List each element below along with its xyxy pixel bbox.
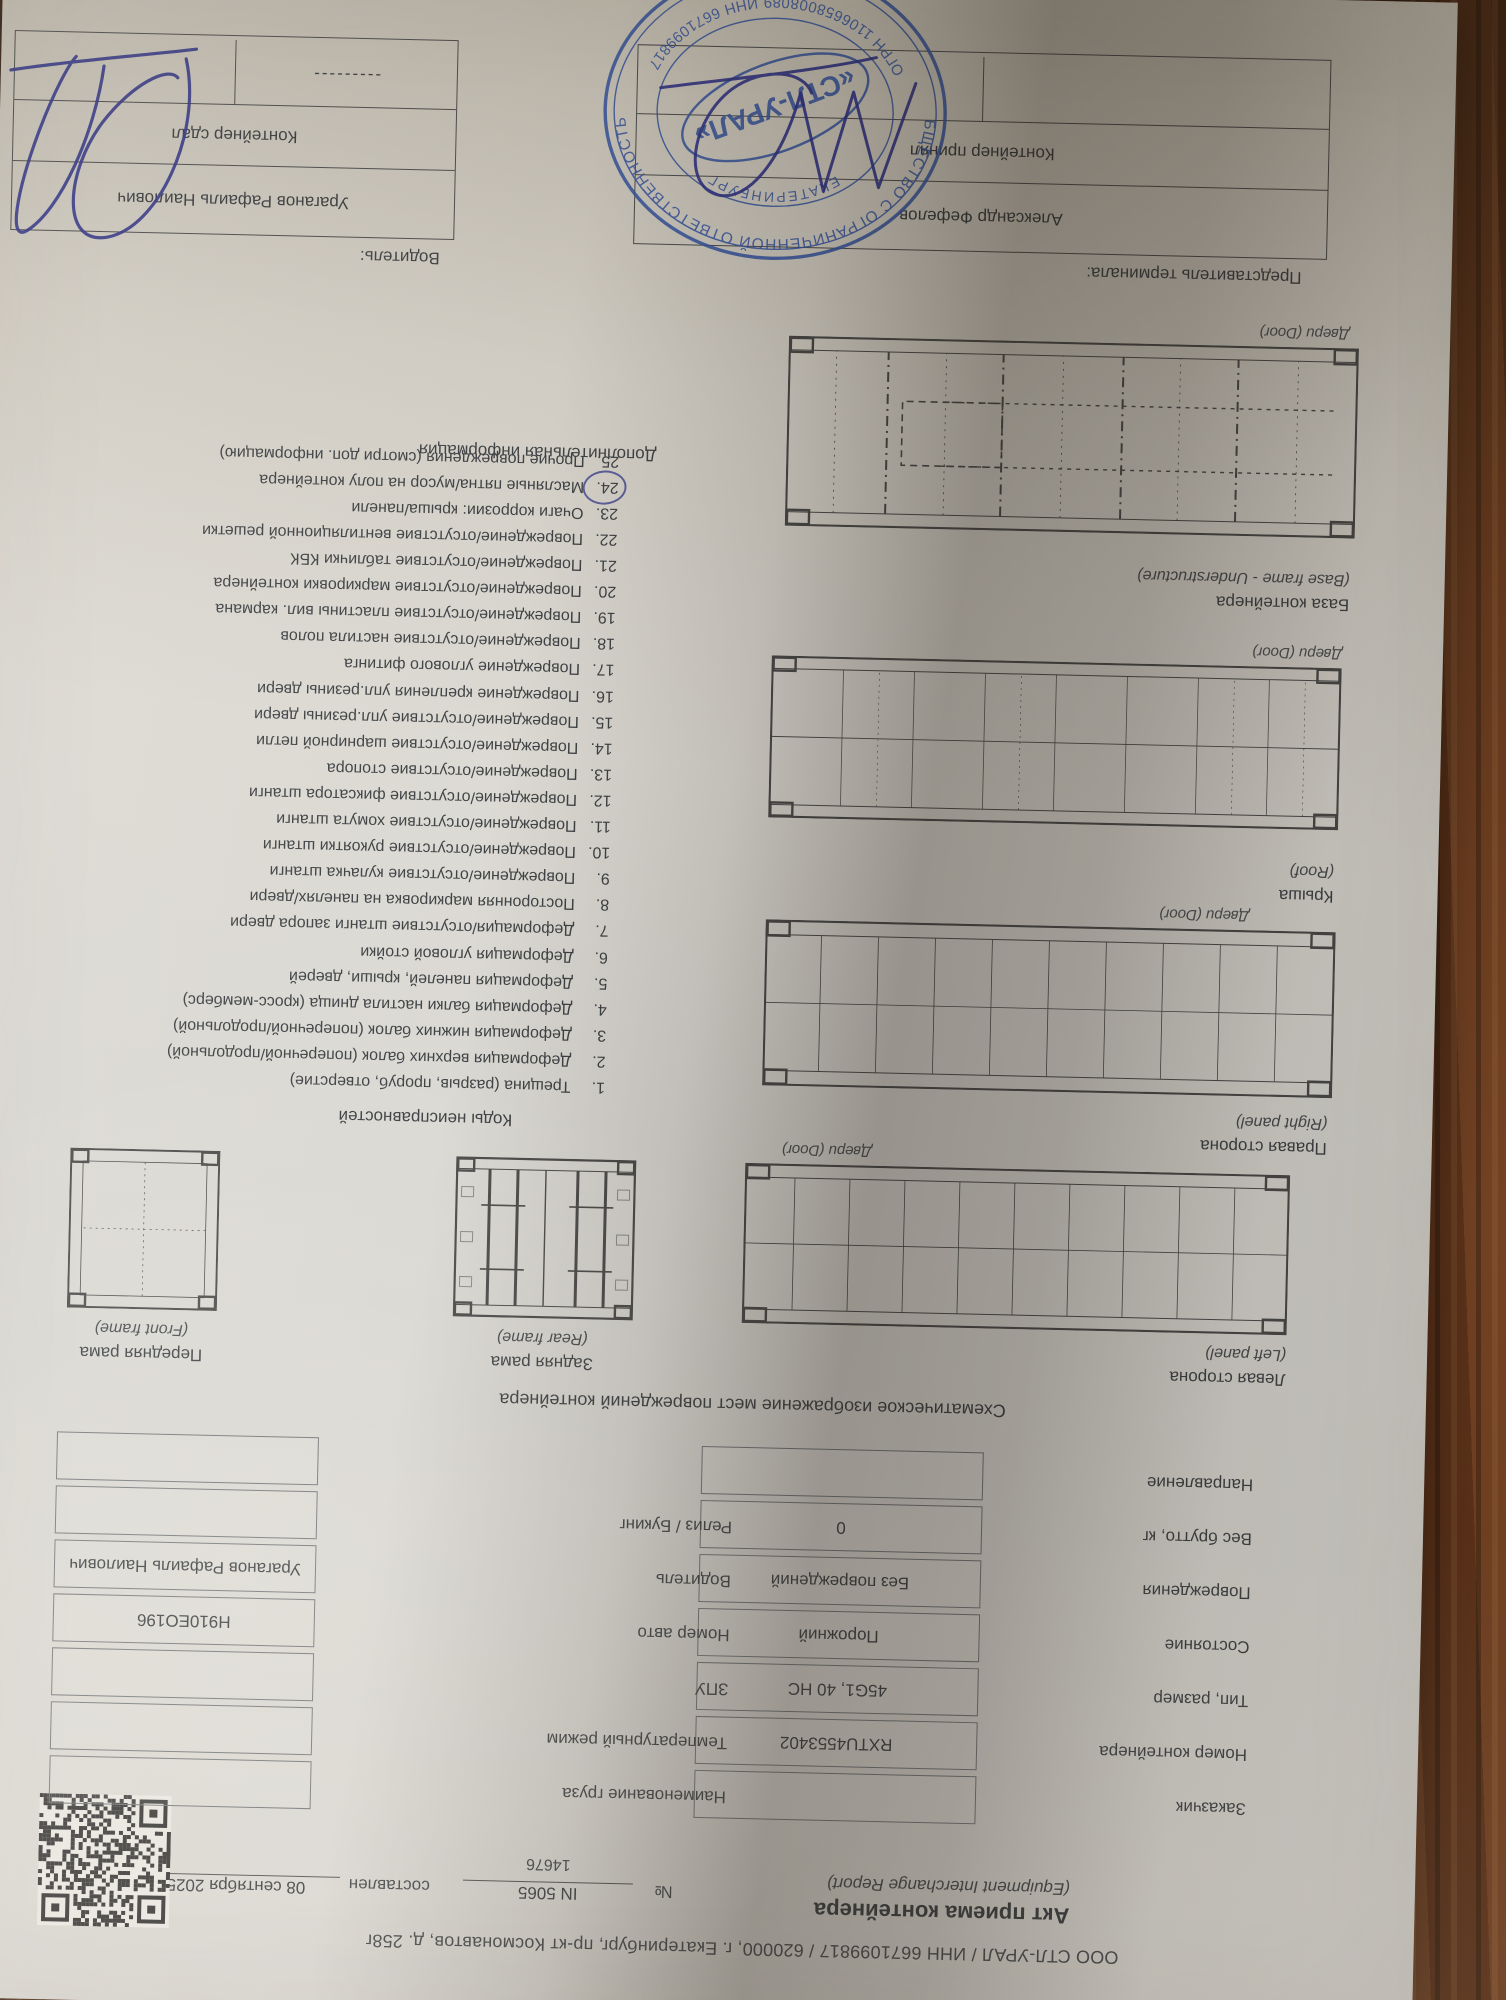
code-text: Деформация угловой стойки bbox=[360, 943, 578, 965]
right-panel-diagram bbox=[762, 919, 1336, 1098]
code-number: 17. bbox=[584, 656, 615, 683]
code-text: Деформация балки настила днища (кросс-ме… bbox=[182, 991, 577, 1017]
document-title: Акт приема контейнера bbox=[814, 1897, 1070, 1929]
code-text: Деформация нижних балок (поперечной/прод… bbox=[173, 1017, 577, 1043]
code-text: Трещина (разрыв, проруб, отверстие) bbox=[290, 1072, 576, 1095]
field-value-2: Н910ЕО196 bbox=[52, 1593, 315, 1647]
base-frame-diagram bbox=[785, 336, 1359, 539]
code-number: 8. bbox=[579, 890, 610, 917]
field-value-2 bbox=[51, 1647, 314, 1701]
code-number: 16. bbox=[584, 682, 615, 709]
code-number: 1. bbox=[575, 1073, 606, 1100]
code-number: 3. bbox=[576, 1021, 607, 1048]
code-text: Деформация/отсутствие штанги запора двер… bbox=[230, 914, 579, 939]
field-label-1: Состояние bbox=[1164, 1635, 1249, 1657]
rear-frame-label: Задняя рама (Rear frame) bbox=[451, 1323, 632, 1376]
code-text: Повреждение/отсутствие упл.резины двери bbox=[254, 705, 584, 729]
code-text: Повреждение/отсутствие пластины вил. кар… bbox=[215, 600, 586, 625]
code-text: Повреждение/отсутствие кулачка штанги bbox=[269, 862, 580, 886]
left-panel-door-label: Двери (Door) bbox=[782, 1141, 872, 1160]
front-frame-label: Передняя рама (Front frame) bbox=[66, 1315, 217, 1367]
codes-list: 1. Трещина (разрыв, проруб, отверстие) 2… bbox=[166, 438, 619, 1100]
qr-code bbox=[37, 1793, 172, 1928]
front-frame-diagram bbox=[67, 1148, 221, 1311]
field-value-1 bbox=[693, 1770, 976, 1824]
code-number: 4. bbox=[576, 995, 607, 1022]
code-number: 14. bbox=[582, 734, 613, 761]
base-frame-label: База контейнера (Base frame - Understruc… bbox=[1136, 563, 1350, 617]
driver-header: Водитель: bbox=[360, 246, 440, 268]
code-number: 6. bbox=[578, 942, 609, 969]
field-label-1: Номер контейнера bbox=[1099, 1741, 1247, 1764]
field-value-2 bbox=[56, 1431, 319, 1485]
code-text: Повреждение/отсутствие рукоятки штанги bbox=[263, 836, 581, 860]
terminal-handwritten-signature bbox=[632, 17, 937, 244]
codes-heading: Коды неисправностей bbox=[338, 1106, 512, 1130]
field-label-1: Повреждения bbox=[1142, 1580, 1251, 1602]
field-value-1: RXTU4553402 bbox=[695, 1716, 978, 1770]
code-text: Повреждение/отсутствие стопора bbox=[327, 759, 583, 782]
right-panel-label: Правая сторона (Right panel) bbox=[1200, 1108, 1328, 1160]
base-door-label: Двери (Door) bbox=[1259, 323, 1349, 342]
document-title-en: (Equipment Interchange Report) bbox=[827, 1873, 1070, 1899]
document-paper: ООО СТЛ-УРАЛ / ИНН 6671099817 / 620000, … bbox=[0, 0, 1458, 2000]
field-label-1: Направление bbox=[1147, 1472, 1254, 1494]
field-value-2 bbox=[50, 1701, 313, 1755]
field-value-2 bbox=[55, 1485, 318, 1539]
right-panel-door-label: Двери (Door) bbox=[1159, 905, 1249, 924]
code-text: Деформация панелей, крыши, дверей bbox=[289, 967, 578, 991]
code-text: Повреждение/отсутствие фиксатора штанги bbox=[249, 784, 582, 809]
code-text: Деформация верхних балок (поперечной/про… bbox=[167, 1043, 576, 1069]
field-value-1: Порожний bbox=[697, 1608, 980, 1662]
code-number: 11. bbox=[581, 812, 612, 839]
code-text: Повреждение углового фитинга bbox=[344, 655, 585, 677]
rear-frame-diagram bbox=[453, 1156, 637, 1320]
number-value: IN 5065 bbox=[463, 1880, 633, 1905]
photo-frame: ООО СТЛ-УРАЛ / ИНН 6671099817 / 620000, … bbox=[0, 0, 1506, 2000]
code-text: Посторонняя маркировка на панелях/двери bbox=[249, 888, 579, 912]
roof-diagram bbox=[768, 655, 1342, 830]
code-text: Повреждение/отсутствие маркировки контей… bbox=[213, 574, 586, 599]
field-label-1: Заказчик bbox=[1176, 1797, 1246, 1819]
code-number: 9. bbox=[579, 864, 610, 891]
code-number: 21. bbox=[587, 551, 618, 578]
field-value-2 bbox=[49, 1755, 312, 1809]
field-label-1: Вес брутто, кг bbox=[1142, 1526, 1252, 1548]
driver-handwritten-signature bbox=[0, 20, 217, 265]
code-text: Повреждение/отсутствие таблички КБК bbox=[290, 550, 587, 574]
code-number: 12. bbox=[581, 786, 612, 813]
field-label-2: Релиз / Букинг bbox=[619, 1514, 732, 1537]
code-number: 5. bbox=[577, 969, 608, 996]
roof-door-label: Двери (Door) bbox=[1252, 643, 1342, 662]
code-text: Очаги коррозии: крыша/панели bbox=[351, 499, 588, 521]
code-text: Повреждение/отсутствие хомута штанги bbox=[276, 810, 581, 834]
code-text: Повреждение/отсутствие шарнирной петли bbox=[256, 731, 583, 755]
terminal-signature-cell-left bbox=[984, 57, 1331, 129]
left-panel-label: Левая сторона (Left panel) bbox=[1169, 1340, 1286, 1392]
terminal-rep-header: Представитель терминала: bbox=[1086, 262, 1302, 287]
field-label-2: Номер авто bbox=[637, 1623, 730, 1645]
code-number: 22. bbox=[587, 525, 618, 552]
code-text: Повреждение крепления упл.резины двери bbox=[257, 679, 584, 703]
code-number: 20. bbox=[586, 577, 617, 604]
code-text: Повреждение/отсутствие настила полов bbox=[280, 628, 585, 652]
code-number: 13. bbox=[582, 760, 613, 787]
code-text: Повреждение/отсутствие вентиляционной ре… bbox=[202, 521, 588, 547]
code-number: 24. bbox=[588, 473, 619, 500]
number-label: № bbox=[654, 1881, 673, 1901]
roof-label: Крыша (Roof) bbox=[1279, 858, 1335, 908]
company-line: ООО СТЛ-УРАЛ / ИНН 6671099817 / 620000, … bbox=[365, 1929, 1118, 1967]
field-label-2: Водитель bbox=[656, 1569, 732, 1591]
code-number: 7. bbox=[578, 916, 609, 943]
dashes-placeholder: --------- bbox=[236, 40, 458, 109]
code-number: 10. bbox=[580, 838, 611, 865]
code-number: 18. bbox=[585, 629, 616, 656]
left-panel-diagram bbox=[742, 1163, 1290, 1335]
composed-label: составлен bbox=[349, 1874, 431, 1896]
number-sub: 14676 bbox=[463, 1853, 633, 1875]
code-number: 2. bbox=[575, 1047, 606, 1074]
field-value-1: Без повреждений bbox=[698, 1554, 981, 1608]
field-value-1 bbox=[701, 1446, 984, 1500]
code-text: Масляные пятна/мусор на полу контейнера bbox=[259, 471, 589, 495]
code-number: 15. bbox=[583, 708, 614, 735]
field-value-2: Ураганов Рафаиль Наилович bbox=[54, 1539, 317, 1593]
field-label-2: Температурный режим bbox=[546, 1729, 727, 1753]
code-number: 19. bbox=[585, 603, 616, 630]
field-label-1: Тип, размер bbox=[1153, 1688, 1248, 1710]
schematic-heading: Схематическое изображение мест поврежден… bbox=[499, 1388, 1006, 1420]
field-label-2: Наименование груза bbox=[562, 1783, 726, 1807]
field-label-2: ЗПУ bbox=[695, 1678, 729, 1699]
field-value-1: 0 bbox=[700, 1500, 983, 1554]
field-value-1: 45G1, 40 HC bbox=[696, 1662, 979, 1716]
